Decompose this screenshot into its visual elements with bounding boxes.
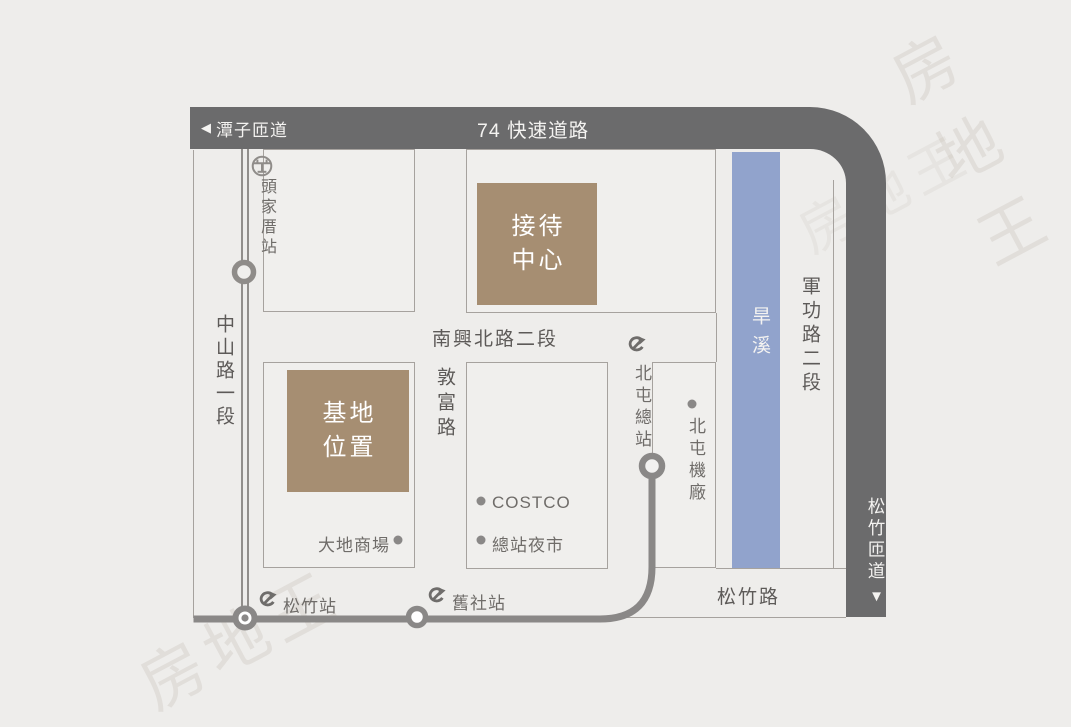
night-market-label: 總站夜市 bbox=[492, 531, 564, 556]
jiushe-station-marker bbox=[409, 609, 426, 626]
songzhu-station-marker bbox=[236, 609, 255, 628]
costco-label: COSTCO bbox=[492, 493, 571, 513]
reception-center-box: 接待 中心 bbox=[477, 183, 597, 305]
site-location-map: 房地王 房地王 房地王 bbox=[0, 0, 1071, 699]
beitun-terminal-station-marker bbox=[642, 456, 662, 476]
down-arrow-icon: ▼ bbox=[868, 588, 885, 609]
beitun-terminal-station-label: 北屯總站 bbox=[629, 364, 654, 452]
poi-dot-night-market bbox=[477, 536, 486, 545]
toujiacuo-station-label: 頭家厝站 bbox=[254, 178, 278, 258]
tra-railway-icon bbox=[253, 157, 272, 176]
metro-icon bbox=[630, 336, 645, 350]
toujiacuo-station-marker bbox=[235, 263, 254, 282]
metro-icon bbox=[261, 591, 276, 605]
river-label: 旱溪 bbox=[746, 306, 773, 364]
poi-dot-dadi-mall bbox=[394, 536, 403, 545]
jungong-road-label: 軍功路二段 bbox=[796, 276, 823, 396]
metro-icon bbox=[430, 587, 445, 601]
songzhu-station-label: 松竹站 bbox=[283, 592, 337, 617]
poi-dot-beitun-depot bbox=[688, 400, 697, 409]
beitun-depot-label: 北屯機廠 bbox=[683, 417, 708, 505]
dunfu-road-label: 敦富路 bbox=[431, 367, 458, 442]
songzhu-road-label: 松竹路 bbox=[717, 582, 780, 609]
songzhu-ramp-label: 松竹匝道▼ bbox=[864, 497, 889, 609]
jiushe-station-label: 舊社站 bbox=[452, 589, 506, 614]
zhongshan-road-label: 中山路一段 bbox=[210, 314, 237, 429]
site-location-box: 基地 位置 bbox=[287, 370, 409, 492]
nanxing-road-label: 南興北路二段 bbox=[432, 324, 558, 351]
expressway-label: 74 快速道路 bbox=[477, 117, 589, 139]
dadi-mall-label: 大地商場 bbox=[318, 531, 390, 556]
poi-dot-costco bbox=[477, 497, 486, 506]
left-arrow-icon: ◀ bbox=[201, 120, 211, 136]
tanzi-ramp-label: ◀ 潭子匝道 bbox=[201, 117, 288, 139]
